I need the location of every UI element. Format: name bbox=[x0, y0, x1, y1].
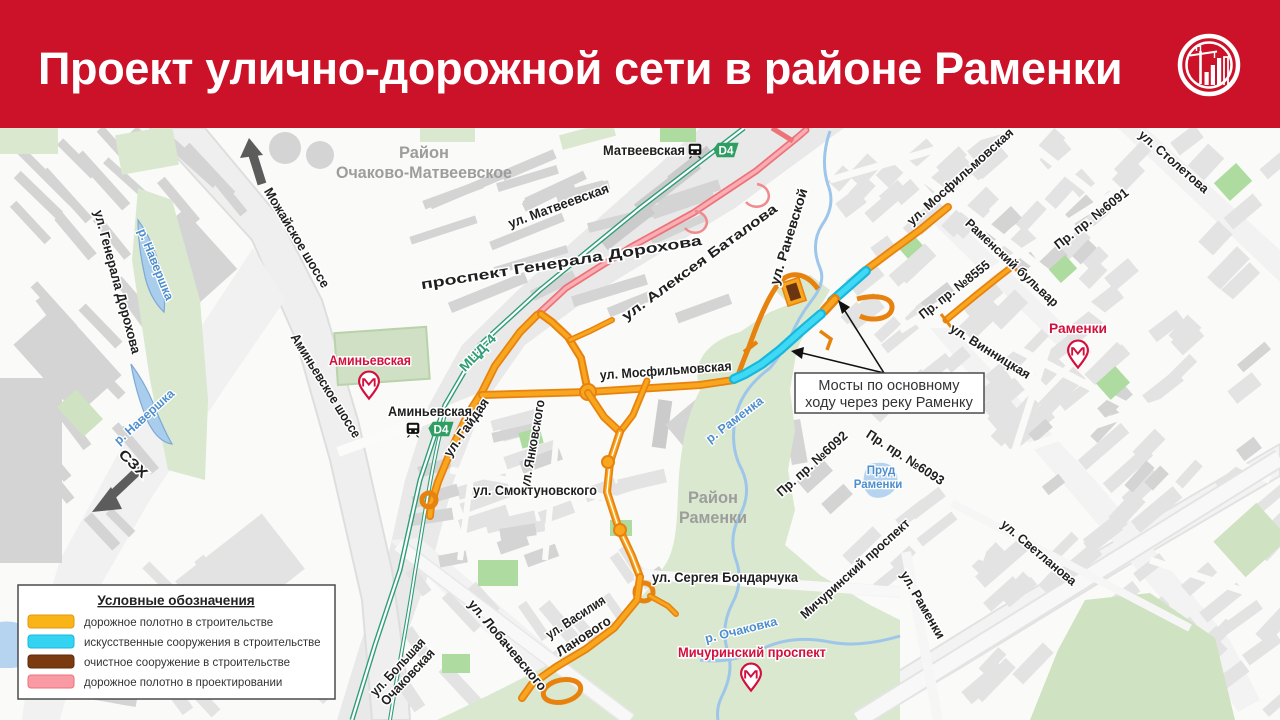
svg-text:Мичуринский проспект: Мичуринский проспект bbox=[678, 644, 826, 660]
svg-text:Аминьевская: Аминьевская bbox=[388, 403, 472, 419]
svg-text:Раменки: Раменки bbox=[854, 479, 903, 491]
svg-text:Раменки: Раменки bbox=[1049, 320, 1107, 336]
svg-text:Матвеевская: Матвеевская bbox=[603, 142, 685, 158]
svg-text:D4: D4 bbox=[719, 145, 734, 158]
svg-text:Очаково-Матвеевское: Очаково-Матвеевское bbox=[336, 164, 512, 182]
svg-text:Район: Район bbox=[399, 144, 449, 162]
svg-text:дорожное полотно в строительст: дорожное полотно в строительстве bbox=[84, 617, 273, 629]
svg-text:Условные обозначения: Условные обозначения bbox=[97, 593, 254, 608]
svg-text:ходу через реку Раменку: ходу через реку Раменку bbox=[805, 395, 973, 411]
svg-text:D4: D4 bbox=[434, 424, 449, 437]
svg-text:искусственные сооружения в стр: искусственные сооружения в строительстве bbox=[84, 637, 321, 649]
svg-text:Аминьевская: Аминьевская bbox=[329, 352, 411, 368]
svg-text:Пруд: Пруд bbox=[867, 465, 896, 477]
svg-text:дорожное полотно в проектирова: дорожное полотно в проектировании bbox=[84, 677, 282, 689]
svg-text:Мосты по основному: Мосты по основному bbox=[818, 378, 960, 394]
svg-text:Раменки: Раменки bbox=[679, 509, 747, 527]
svg-text:ул. Смоктуновского: ул. Смоктуновского bbox=[473, 483, 597, 498]
svg-text:очистное сооружение в строител: очистное сооружение в строительстве bbox=[84, 657, 290, 669]
svg-text:ул. Сергея Бондарчука: ул. Сергея Бондарчука bbox=[652, 570, 798, 585]
svg-text:Район: Район bbox=[688, 489, 738, 507]
